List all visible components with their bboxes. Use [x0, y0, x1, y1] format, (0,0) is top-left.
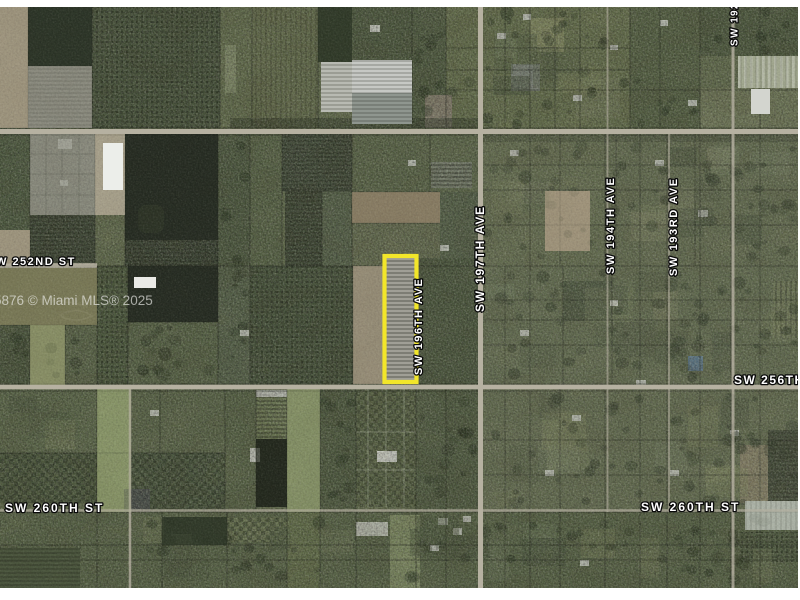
svg-text:SW 260TH ST: SW 260TH ST: [5, 501, 104, 515]
svg-text:SW 194TH AVE: SW 194TH AVE: [605, 177, 617, 274]
svg-text:SW 193RD AVE: SW 193RD AVE: [668, 177, 680, 276]
svg-text:SW 256TH ST: SW 256TH ST: [734, 373, 800, 387]
svg-text:W 252ND ST: W 252ND ST: [0, 256, 76, 268]
svg-text:SW 196TH AVE: SW 196TH AVE: [413, 278, 425, 375]
svg-text:SW 260TH ST: SW 260TH ST: [641, 500, 740, 514]
svg-text:SW 197TH AVE: SW 197TH AVE: [473, 205, 487, 312]
svg-text:5876 © Miami MLS® 2025: 5876 © Miami MLS® 2025: [0, 293, 153, 308]
